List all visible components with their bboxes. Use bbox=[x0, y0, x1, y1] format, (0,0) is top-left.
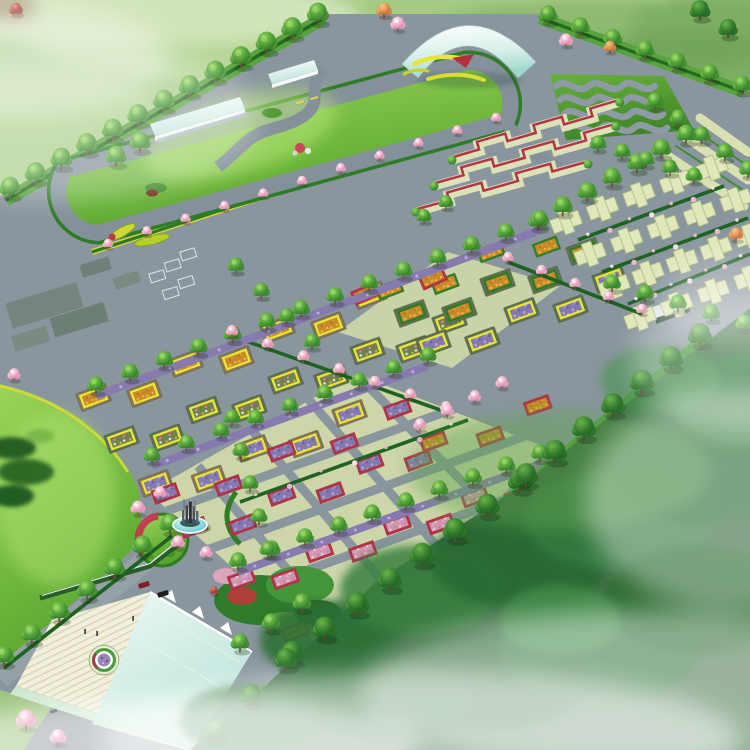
lavender-dot bbox=[415, 275, 418, 278]
site-plan-rendering bbox=[0, 0, 750, 750]
lavender-dot bbox=[411, 370, 414, 373]
hedge-blossom bbox=[586, 233, 590, 237]
hedge-blossom bbox=[711, 186, 715, 190]
hedge-blossom bbox=[673, 244, 678, 249]
lavender-dot bbox=[380, 381, 383, 384]
aerial-rendering-canvas bbox=[0, 0, 750, 750]
lane-end-bush bbox=[584, 160, 593, 169]
hedge-blossom bbox=[628, 217, 632, 221]
hedge-blossom bbox=[607, 228, 612, 233]
lavender-dot bbox=[316, 311, 319, 314]
hedge-blossom bbox=[693, 234, 697, 238]
lane-end-bush bbox=[448, 156, 457, 165]
lavender-dot bbox=[354, 528, 357, 531]
hedge-blossom bbox=[631, 260, 636, 265]
lavender-dot bbox=[319, 403, 322, 406]
lavender-dot bbox=[119, 385, 122, 388]
hedge-blossom bbox=[669, 202, 673, 206]
hedge-blossom bbox=[384, 446, 388, 450]
lavender-dot bbox=[166, 459, 169, 462]
hedge-blossom bbox=[319, 469, 323, 473]
hedge-blossom bbox=[691, 197, 696, 202]
lavender-dot bbox=[464, 256, 467, 259]
pedestrian-head bbox=[96, 629, 98, 631]
hedge-blossom bbox=[287, 484, 292, 489]
hedge-blossom bbox=[735, 218, 739, 222]
lavender-dot bbox=[320, 540, 323, 543]
hedge-blossom bbox=[652, 249, 656, 253]
lavender-dot bbox=[218, 348, 221, 351]
lavender-dot bbox=[387, 516, 390, 519]
hedge-blossom bbox=[649, 212, 654, 217]
hedge-blossom bbox=[715, 229, 720, 234]
lavender-dot bbox=[287, 552, 290, 555]
lavender-dot bbox=[350, 392, 353, 395]
lavender-dot bbox=[421, 504, 424, 507]
lane-end-bush bbox=[430, 182, 439, 191]
plaza-medallion bbox=[89, 645, 119, 675]
pedestrian bbox=[84, 629, 86, 634]
hedge-blossom bbox=[352, 460, 357, 465]
lane-end-bush bbox=[611, 122, 620, 131]
hedge-blossom bbox=[449, 422, 453, 426]
hedge-blossom bbox=[417, 437, 422, 442]
pedestrian bbox=[96, 631, 98, 636]
pedestrian bbox=[132, 616, 134, 621]
lavender-dot bbox=[196, 448, 199, 451]
hedge-blossom bbox=[610, 265, 614, 269]
lavender-dot bbox=[253, 564, 256, 567]
pedestrian-head bbox=[132, 614, 134, 616]
lane-end-bush bbox=[615, 98, 624, 107]
pedestrian-head bbox=[84, 627, 86, 629]
